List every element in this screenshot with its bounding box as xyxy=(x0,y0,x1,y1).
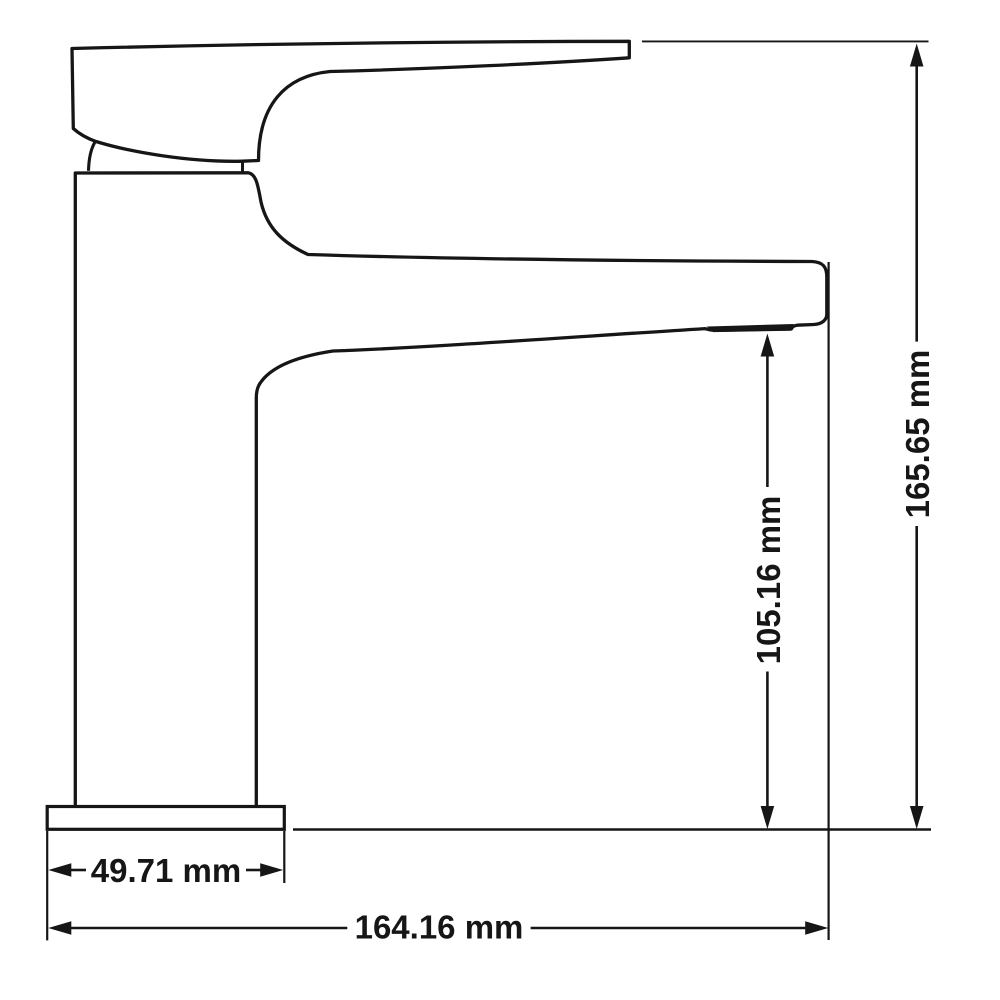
svg-text:105.16 mm: 105.16 mm xyxy=(750,496,787,665)
svg-text:164.16 mm: 164.16 mm xyxy=(355,908,524,945)
svg-text:165.65 mm: 165.65 mm xyxy=(899,350,936,519)
svg-text:49.71 mm: 49.71 mm xyxy=(91,852,241,889)
